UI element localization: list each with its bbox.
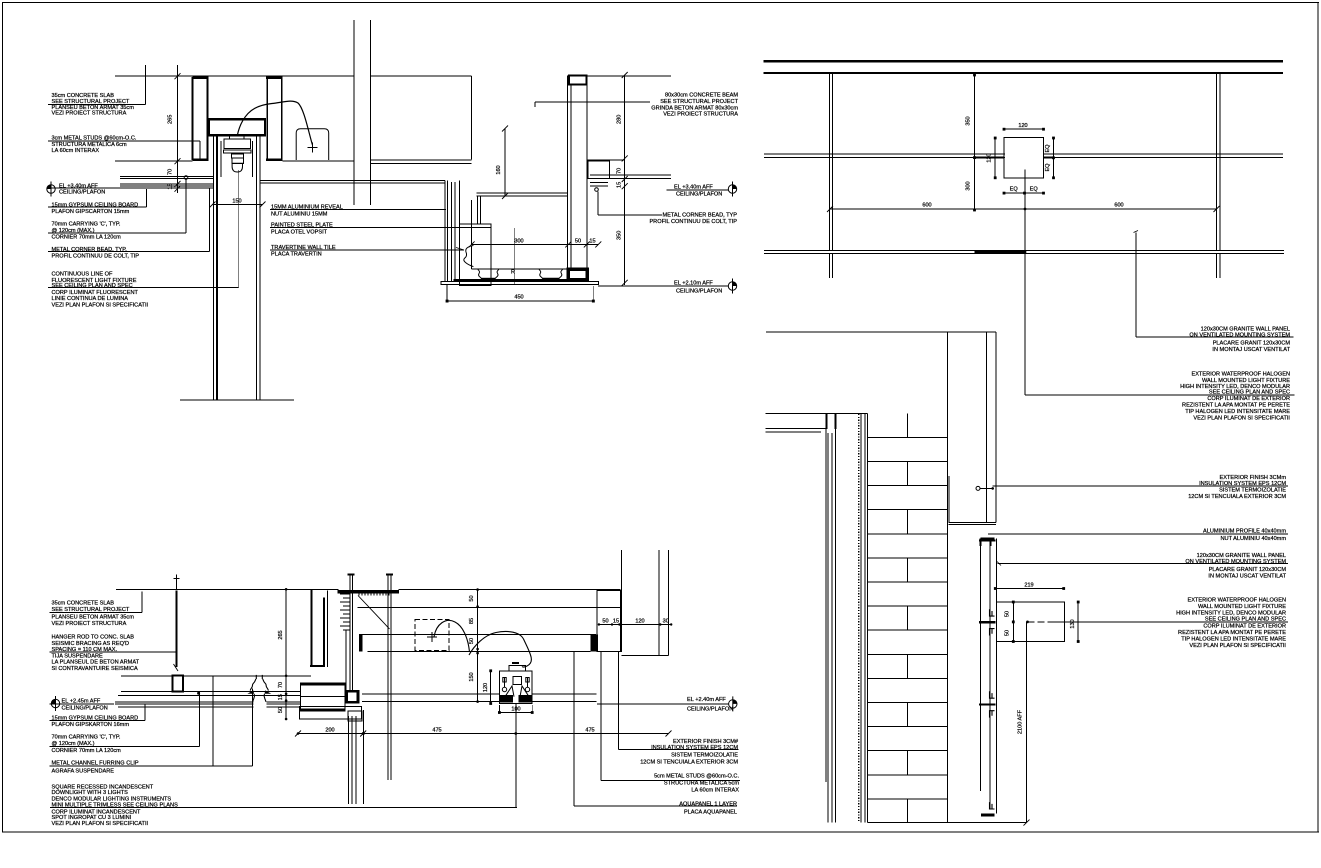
- svg-text:VEZI PROIECT STRUCTURA: VEZI PROIECT STRUCTURA: [663, 112, 738, 118]
- svg-text:LA 60cm INTERAX: LA 60cm INTERAX: [52, 148, 100, 154]
- svg-text:ON VENTILATED MOUNTING SYSTEM: ON VENTILATED MOUNTING SYSTEM: [1189, 332, 1290, 338]
- svg-text:70mm CARRYING 'C', TYP.: 70mm CARRYING 'C', TYP.: [52, 735, 121, 741]
- svg-text:350: 350: [616, 231, 622, 240]
- svg-text:CEILING/PLAFON: CEILING/PLAFON: [676, 289, 722, 295]
- svg-text:VEZI PLAN PLAFON SI SPECIFICAT: VEZI PLAN PLAFON SI SPECIFICATII: [52, 821, 149, 827]
- svg-text:METAL CORNER BEAD, TYP: METAL CORNER BEAD, TYP: [663, 212, 738, 218]
- svg-text:ALUMINIUM PROFILE 40x40mm: ALUMINIUM PROFILE 40x40mm: [1203, 529, 1286, 535]
- svg-text:INSULATION SYSTEM EPS 12CM: INSULATION SYSTEM EPS 12CM: [1199, 481, 1286, 487]
- svg-text:AQUAPANEL 1 LAYER: AQUAPANEL 1 LAYER: [679, 801, 737, 807]
- svg-text:LINIE CONTINUA DE LUMINA: LINIE CONTINUA DE LUMINA: [52, 296, 129, 302]
- svg-text:CORP ILUMINAT FLUORESCENT: CORP ILUMINAT FLUORESCENT: [52, 290, 139, 296]
- svg-text:35cm CONCRETE SLAB: 35cm CONCRETE SLAB: [52, 601, 115, 607]
- svg-text:219: 219: [1024, 583, 1033, 589]
- svg-text:HANGER ROD TO CONC. SLAB: HANGER ROD TO CONC. SLAB: [52, 635, 135, 641]
- svg-text:3cm METAL STUDS @60cm-O.C.: 3cm METAL STUDS @60cm-O.C.: [52, 136, 137, 142]
- svg-text:475: 475: [432, 728, 441, 734]
- svg-text:15: 15: [589, 239, 595, 245]
- svg-text:CORP ILUMINAT DE EXTERIOR: CORP ILUMINAT DE EXTERIOR: [1203, 624, 1286, 630]
- svg-text:SISTEM TERMOIZOLATIE: SISTEM TERMOIZOLATIE: [1219, 488, 1286, 494]
- svg-text:VEZI PROIECT STRUCTURA: VEZI PROIECT STRUCTURA: [52, 111, 127, 117]
- svg-text:INSULATION SYSTEM EPS 12CM: INSULATION SYSTEM EPS 12CM: [651, 745, 738, 751]
- svg-text:SEE STRUCTURAL PROJECT: SEE STRUCTURAL PROJECT: [52, 607, 130, 613]
- svg-text:50: 50: [469, 595, 475, 601]
- svg-text:50: 50: [1005, 611, 1011, 617]
- svg-text:PLAFON GIPSCARTON 15mm: PLAFON GIPSCARTON 15mm: [52, 209, 130, 215]
- svg-text:12CM SI TENCUIALA EXTERIOR 3CM: 12CM SI TENCUIALA EXTERIOR 3CM: [1188, 494, 1286, 500]
- svg-text:120: 120: [635, 618, 644, 624]
- svg-text:CEILING/PLAFON: CEILING/PLAFON: [59, 190, 105, 196]
- svg-text:SEISMIC BRACING AS REQ'D: SEISMIC BRACING AS REQ'D: [52, 641, 130, 647]
- svg-text:CORNIER 70mm LA 120cm: CORNIER 70mm LA 120cm: [52, 748, 122, 754]
- svg-text:70: 70: [168, 169, 174, 175]
- svg-text:VEZI PROIECT STRUCTURA: VEZI PROIECT STRUCTURA: [52, 621, 127, 627]
- svg-text:EL +2.45m AFF: EL +2.45m AFF: [62, 699, 101, 705]
- svg-text:300: 300: [966, 181, 972, 190]
- svg-text:160: 160: [496, 165, 502, 174]
- svg-text:IN MONTAJ USCAT VENTILAT: IN MONTAJ USCAT VENTILAT: [1208, 574, 1286, 580]
- svg-text:70: 70: [278, 682, 284, 688]
- svg-text:WALL MOUNTED LIGHT FIXTURE: WALL MOUNTED LIGHT FIXTURE: [1202, 378, 1290, 384]
- svg-text:100: 100: [511, 707, 520, 713]
- svg-text:50: 50: [469, 638, 475, 644]
- svg-text:CONTINUOUS LINE OF: CONTINUOUS LINE OF: [52, 272, 113, 278]
- svg-text:200: 200: [325, 728, 334, 734]
- svg-text:EXTERIOR FINISH 3CMm: EXTERIOR FINISH 3CMm: [1219, 475, 1286, 481]
- svg-text:TRAVERTINE WALL TILE: TRAVERTINE WALL TILE: [271, 245, 336, 251]
- svg-text:15: 15: [613, 618, 619, 624]
- svg-text:@ 120cm (MAX.): @ 120cm (MAX.): [52, 228, 95, 234]
- svg-text:600: 600: [922, 203, 931, 209]
- svg-text:PLACARE GRANIT 120x30CM: PLACARE GRANIT 120x30CM: [1213, 341, 1291, 347]
- svg-text:50: 50: [1005, 630, 1011, 636]
- svg-text:LA 60cm INTERAX: LA 60cm INTERAX: [691, 787, 739, 793]
- svg-text:120: 120: [1018, 123, 1027, 129]
- svg-text:PLACA AQUAPANEL: PLACA AQUAPANEL: [684, 810, 737, 816]
- svg-text:475: 475: [585, 728, 594, 734]
- svg-text:PAINTED STEEL PLATE: PAINTED STEEL PLATE: [271, 223, 333, 229]
- svg-text:SEE CEILING PLAN AND SPEC: SEE CEILING PLAN AND SPEC: [52, 283, 133, 289]
- svg-text:600: 600: [1114, 203, 1123, 209]
- svg-text:NUT ALUMINIU 15MM: NUT ALUMINIU 15MM: [271, 212, 328, 218]
- svg-text:35cm CONCRETE SLAB: 35cm CONCRETE SLAB: [52, 93, 115, 99]
- svg-text:130: 130: [1070, 619, 1076, 628]
- svg-text:SEE CEILING PLAN AND SPEC: SEE CEILING PLAN AND SPEC: [1209, 390, 1290, 396]
- svg-text:REZISTENT LA APA MONTAT PE PER: REZISTENT LA APA MONTAT PE PERETE: [1178, 630, 1286, 636]
- svg-text:15: 15: [616, 182, 622, 188]
- svg-text:DOWNLIGHT WITH 3 LIGHTS: DOWNLIGHT WITH 3 LIGHTS: [52, 790, 129, 796]
- svg-text:5cm METAL STUDS @60cm-O.C.: 5cm METAL STUDS @60cm-O.C.: [654, 774, 739, 780]
- svg-text:85: 85: [469, 618, 475, 624]
- svg-text:STRUCTURA METALICA 5cm: STRUCTURA METALICA 5cm: [664, 781, 739, 787]
- svg-text:EQ: EQ: [1010, 187, 1019, 193]
- svg-text:50: 50: [575, 239, 581, 245]
- svg-text:265: 265: [278, 630, 284, 639]
- svg-text:PROFIL CONTINUU DE COLT, TIP: PROFIL CONTINUU DE COLT, TIP: [52, 253, 140, 259]
- svg-text:EQ: EQ: [1030, 187, 1039, 193]
- svg-text:2100 AFF: 2100 AFF: [1018, 709, 1024, 734]
- svg-text:SI CONTRAVANTUIRE SEISMICA: SI CONTRAVANTUIRE SEISMICA: [52, 666, 138, 672]
- svg-text:VEZI PLAN PLAFON SI SPECIFICAT: VEZI PLAN PLAFON SI SPECIFICATII: [1193, 415, 1290, 421]
- svg-text:SISTEM TERMOIZOLATIE: SISTEM TERMOIZOLATIE: [671, 753, 738, 759]
- svg-text:265: 265: [168, 115, 174, 124]
- svg-text:280: 280: [616, 115, 622, 124]
- svg-text:AGRAFA SUSPENDARE: AGRAFA SUSPENDARE: [52, 768, 115, 774]
- svg-text:15mm GYPSUM CEILING BOARD: 15mm GYPSUM CEILING BOARD: [52, 202, 139, 208]
- svg-text:50: 50: [278, 707, 284, 713]
- svg-text:EL +3.40m AFF: EL +3.40m AFF: [59, 183, 98, 189]
- svg-text:GRINDA BETON ARMAT 80x30cm: GRINDA BETON ARMAT 80x30cm: [651, 105, 738, 111]
- svg-text:TIJA SUSPENDARE: TIJA SUSPENDARE: [52, 653, 104, 659]
- svg-text:EL +3.40m AFF: EL +3.40m AFF: [674, 185, 713, 191]
- svg-text:CORNIER 70mm LA 120cm: CORNIER 70mm LA 120cm: [52, 235, 122, 241]
- svg-text:VEZI PLAN PLAFON SI SPECIFICAT: VEZI PLAN PLAFON SI SPECIFICATII: [1189, 643, 1286, 649]
- svg-text:@ 120cm (MAX.): @ 120cm (MAX.): [52, 741, 95, 747]
- svg-text:350: 350: [966, 116, 972, 125]
- svg-text:SPACING = 110 CM MAX.: SPACING = 110 CM MAX.: [52, 647, 118, 653]
- svg-text:15MM ALUMINIUM REVEAL: 15MM ALUMINIUM REVEAL: [271, 204, 343, 210]
- svg-text:EQ: EQ: [1045, 144, 1051, 153]
- svg-text:EXTERIOR FINISH 3CM#: EXTERIOR FINISH 3CM#: [673, 739, 739, 745]
- svg-text:EL +2.40m AFF: EL +2.40m AFF: [687, 697, 726, 703]
- svg-text:15mm GYPSUM CEILING BOARD: 15mm GYPSUM CEILING BOARD: [52, 715, 139, 721]
- svg-text:70mm CARRYING 'C', TYP.: 70mm CARRYING 'C', TYP.: [52, 222, 121, 228]
- svg-text:30: 30: [663, 618, 669, 624]
- svg-text:SEE CEILING PLAN AND SPEC: SEE CEILING PLAN AND SPEC: [1205, 617, 1286, 623]
- svg-text:EQ: EQ: [1045, 163, 1051, 172]
- svg-text:PLANSEU BETON ARMAT 35cm: PLANSEU BETON ARMAT 35cm: [52, 614, 135, 620]
- svg-text:300: 300: [514, 239, 523, 245]
- svg-text:50: 50: [602, 618, 608, 624]
- svg-text:MINI MULTIPLE TRIMLESS SEE CEI: MINI MULTIPLE TRIMLESS SEE CEILING PLANS: [52, 802, 179, 808]
- svg-text:REZISTENT LA APA MONTAT PE PER: REZISTENT LA APA MONTAT PE PERETE: [1182, 403, 1290, 409]
- svg-text:120: 120: [483, 683, 489, 692]
- svg-text:EXTERIOR WATERPROOF HALOGEN: EXTERIOR WATERPROOF HALOGEN: [1191, 371, 1290, 377]
- svg-text:12CM SI TENCUIALA EXTERIOR 3CM: 12CM SI TENCUIALA EXTERIOR 3CM: [640, 760, 738, 766]
- svg-text:IN MONTAJ USCAT VENTILAT: IN MONTAJ USCAT VENTILAT: [1212, 347, 1290, 353]
- svg-text:15: 15: [278, 694, 284, 700]
- svg-text:METAL CHANNEL FURRING CLIP: METAL CHANNEL FURRING CLIP: [52, 760, 139, 766]
- svg-text:CEILING/PLAFON: CEILING/PLAFON: [62, 706, 108, 712]
- svg-text:STRUCTURA METALICA 6cm: STRUCTURA METALICA 6cm: [52, 142, 127, 148]
- svg-text:ON VENTILATED MOUNTING SYSTEM: ON VENTILATED MOUNTING SYSTEM: [1185, 559, 1286, 565]
- svg-text:PLAFON GIPSKARTON 16mm: PLAFON GIPSKARTON 16mm: [52, 722, 130, 728]
- svg-text:PLACA OTEL VOPSIT: PLACA OTEL VOPSIT: [271, 230, 328, 236]
- svg-text:CEILING/PLAFON: CEILING/PLAFON: [676, 192, 722, 198]
- svg-text:PLACA TRAVERTIN: PLACA TRAVERTIN: [271, 251, 322, 257]
- svg-text:VEZI PLAN PLAFON SI SPECIFICAT: VEZI PLAN PLAFON SI SPECIFICATII: [52, 303, 149, 309]
- svg-text:SEE STRUCTURAL PROJECT: SEE STRUCTURAL PROJECT: [660, 99, 738, 105]
- svg-text:70: 70: [616, 168, 622, 174]
- svg-text:WALL MOUNTED LIGHT FIXTURE: WALL MOUNTED LIGHT FIXTURE: [1198, 604, 1286, 610]
- svg-text:LA PLANSEUL DE BETON ARMAT: LA PLANSEUL DE BETON ARMAT: [52, 660, 140, 666]
- svg-text:EL +2.10m AFF: EL +2.10m AFF: [674, 281, 713, 287]
- svg-text:450: 450: [514, 295, 523, 301]
- svg-text:80x30cm CONCRETE BEAM: 80x30cm CONCRETE BEAM: [665, 93, 738, 99]
- svg-text:EXTERIOR WATERPROOF HALOGEN: EXTERIOR WATERPROOF HALOGEN: [1187, 598, 1286, 604]
- svg-text:150: 150: [469, 672, 475, 681]
- svg-text:150: 150: [232, 199, 241, 205]
- svg-text:R: R: [511, 270, 515, 276]
- svg-text:TIP HALOGEN LED INTENSITATE MA: TIP HALOGEN LED INTENSITATE MARE: [1181, 637, 1286, 643]
- svg-text:METAL CORNER BEAD, TYP.: METAL CORNER BEAD, TYP.: [52, 247, 128, 253]
- svg-text:NUT ALUMINIU 40x40mm: NUT ALUMINIU 40x40mm: [1221, 536, 1287, 542]
- svg-text:CORP ILUMINAT DE EXTERIOR: CORP ILUMINAT DE EXTERIOR: [1207, 396, 1290, 402]
- svg-text:PROFIL CONTINUU DE COLT, TIP: PROFIL CONTINUU DE COLT, TIP: [649, 219, 737, 225]
- svg-text:TIP HALOGEN LED INTENSITATE MA: TIP HALOGEN LED INTENSITATE MARE: [1185, 409, 1290, 415]
- svg-text:120: 120: [987, 153, 993, 162]
- svg-text:PLACARE GRANIT 120x30CM: PLACARE GRANIT 120x30CM: [1209, 567, 1287, 573]
- svg-text:15: 15: [168, 183, 174, 189]
- svg-text:CEILING/PLAFON: CEILING/PLAFON: [687, 707, 733, 713]
